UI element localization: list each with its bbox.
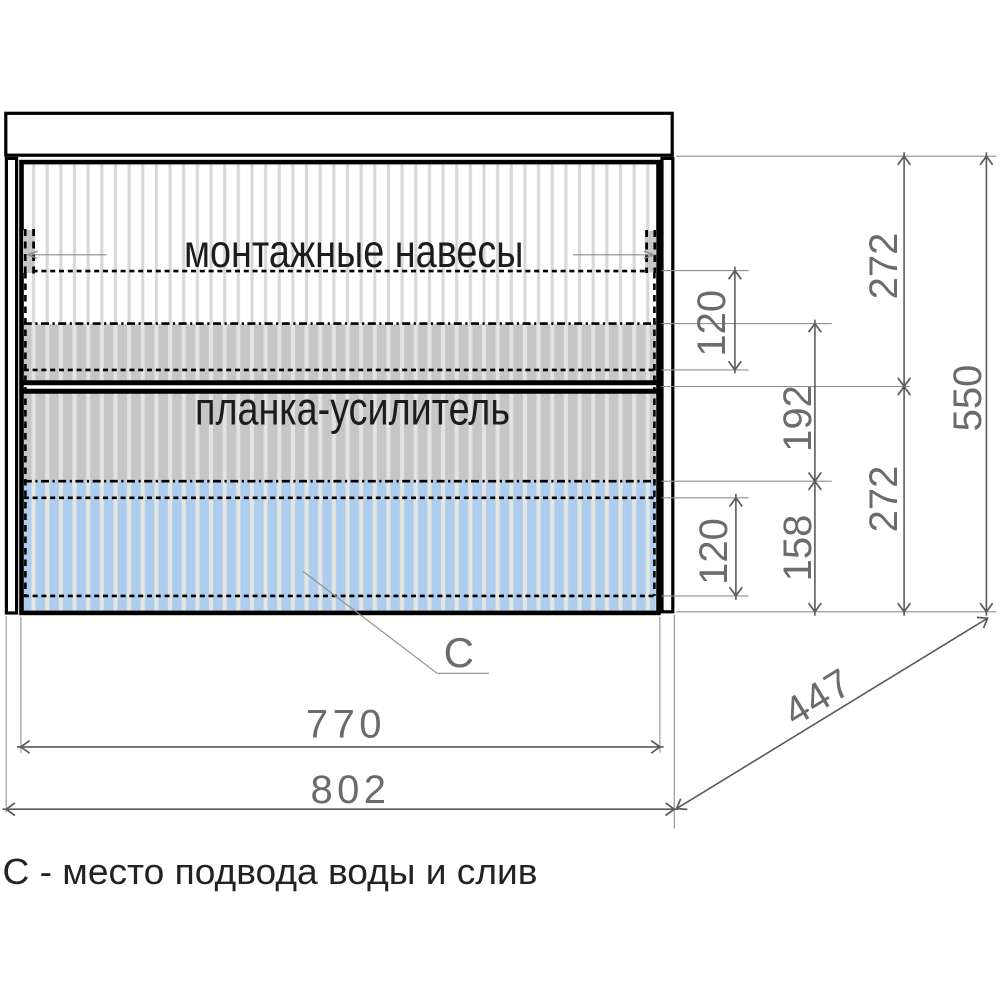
svg-text:447: 447: [776, 660, 860, 735]
svg-text:550: 550: [946, 365, 990, 432]
svg-text:272: 272: [862, 233, 906, 300]
svg-text:192: 192: [776, 385, 820, 452]
svg-text:802: 802: [311, 768, 391, 812]
svg-text:770: 770: [306, 703, 386, 747]
svg-text:120: 120: [692, 518, 736, 585]
svg-text:монтажные навесы: монтажные навесы: [184, 225, 524, 277]
svg-text:С: С: [444, 629, 474, 676]
svg-text:С - место подвода воды и слив: С - место подвода воды и слив: [3, 851, 538, 892]
svg-text:158: 158: [776, 515, 820, 582]
svg-text:планка-усилитель: планка-усилитель: [195, 383, 510, 435]
svg-text:272: 272: [862, 466, 906, 533]
svg-text:120: 120: [690, 290, 734, 357]
